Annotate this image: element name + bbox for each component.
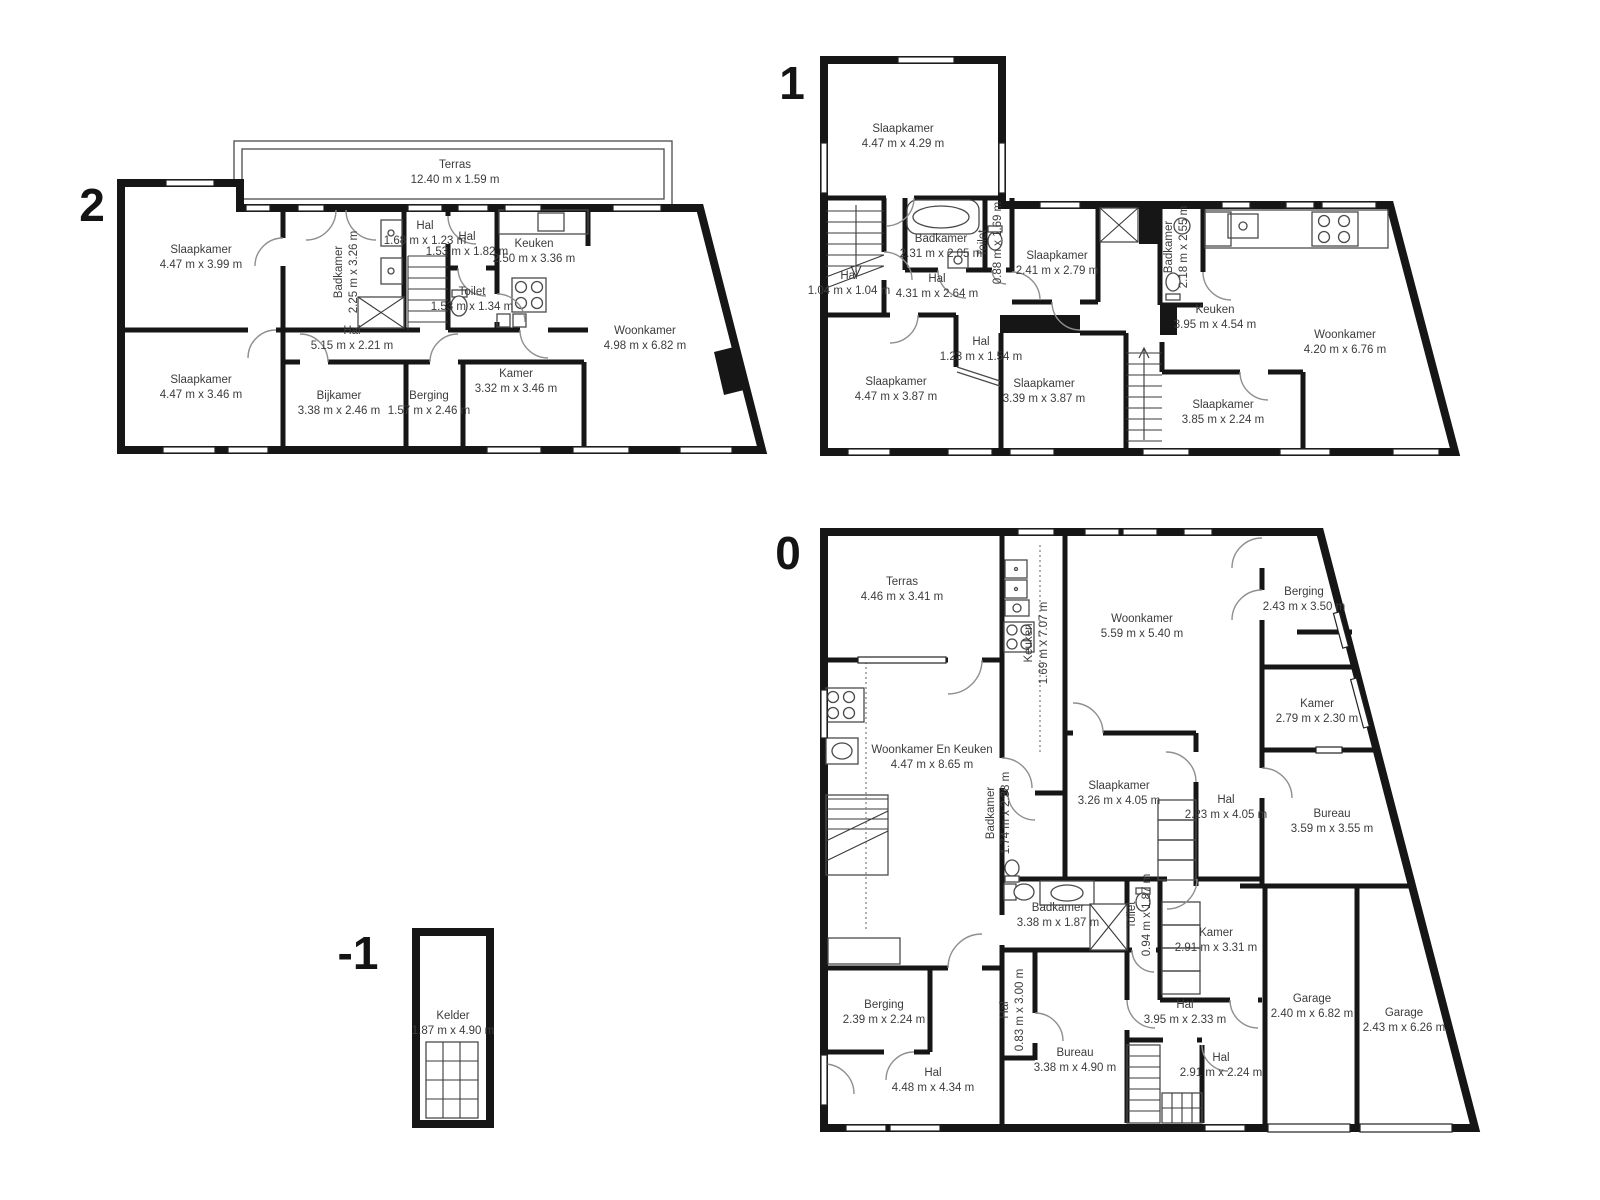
floor-number-minus1: -1 [338,930,379,976]
floor-1-walls [821,57,1455,455]
floor-number-2: 2 [79,182,105,228]
floorplan-drawing [0,0,1600,1200]
floorplan-canvas: 2 1 0 -1 Terras12.40 m x 1.59 m Slaapkam… [0,0,1600,1200]
floor-2-walls [121,141,762,453]
floor-number-1: 1 [779,60,805,106]
floor-minus1-walls [416,932,490,1124]
floor-number-0: 0 [775,530,801,576]
floor-0-walls [821,529,1475,1132]
